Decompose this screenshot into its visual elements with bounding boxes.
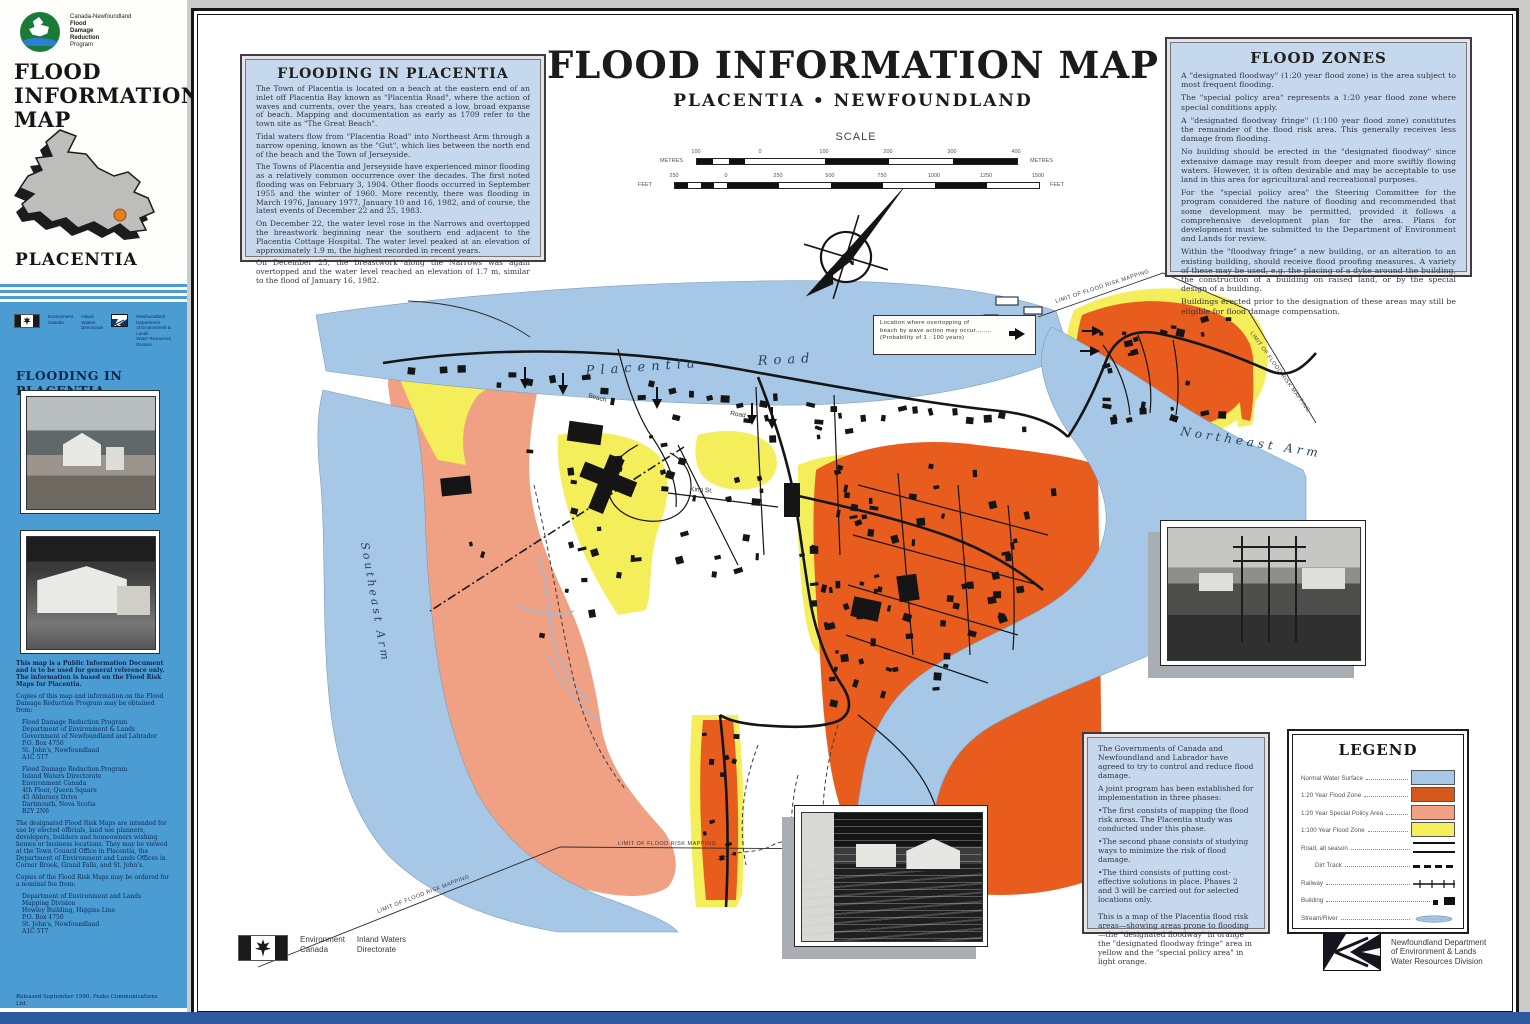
program-logo-icon xyxy=(20,12,60,52)
program-info-box: The Governments of Canada and Newfoundla… xyxy=(1082,732,1270,934)
program-line: Flood xyxy=(70,21,180,28)
dirt-track-symbol xyxy=(1413,865,1455,868)
program-paragraph: •The second phase consists of studying w… xyxy=(1098,837,1254,864)
canada-flag-icon xyxy=(238,935,288,961)
flooding-paragraph: On December 22, the water level rose in … xyxy=(256,220,530,255)
scale-feet: 250 0 250 500 750 1000 1250 1500 FEET FE… xyxy=(646,173,1066,197)
legend-item: Stream/River xyxy=(1301,907,1455,925)
sidebar-footnote: Released September 1990, Peaks Communica… xyxy=(16,994,166,1007)
scale-title: SCALE xyxy=(646,131,1066,143)
floodway-swatch xyxy=(1411,787,1455,802)
legend-item: Road, all season xyxy=(1301,837,1455,855)
flood-photo-street xyxy=(794,805,988,947)
north-letter: N xyxy=(842,251,856,269)
legend-title: LEGEND xyxy=(1301,741,1455,759)
flood-zones-title: FLOOD ZONES xyxy=(1181,49,1456,67)
program-paragraph: •The third consists of putting cost-effe… xyxy=(1098,868,1254,904)
newfoundland-locator-map xyxy=(10,118,170,250)
flooding-paragraph: On December 25, the breastwork along the… xyxy=(256,259,530,285)
fringe-swatch xyxy=(1411,822,1455,837)
annotation-line: beach by wave action may occur........ xyxy=(880,328,1029,336)
special-policy-swatch xyxy=(1411,805,1455,820)
newfoundland-flag-icon xyxy=(1323,933,1381,971)
stream-symbol xyxy=(1413,914,1455,924)
water-label-road: Road xyxy=(756,351,815,369)
legend-item: 1:20 Year Special Policy Area xyxy=(1301,802,1455,820)
zones-paragraph: Buildings erected prior to the designati… xyxy=(1181,297,1456,315)
program-line: Damage xyxy=(70,28,180,35)
sidebar-address: Flood Damage Reduction Program Departmen… xyxy=(22,719,172,761)
sidebar-paragraph: This map is a Public Information Documen… xyxy=(16,660,172,688)
flood-photo-field xyxy=(1160,520,1366,666)
street-label-road: Road xyxy=(730,410,747,419)
sidebar-top-panel: Canada-Newfoundland Flood Damage Reducti… xyxy=(0,0,187,283)
wave-icon xyxy=(20,38,60,46)
canada-flag-icon xyxy=(14,314,40,328)
legend-item: Railway xyxy=(1301,872,1455,890)
legend-item: Normal Water Surface xyxy=(1301,767,1455,785)
annotation-line: (Probability of 1 : 100 years) xyxy=(880,335,1029,343)
zones-paragraph: For the "special policy area" the Steeri… xyxy=(1181,188,1456,243)
overtopping-annotation: Location where overtopping of beach by w… xyxy=(873,315,1036,355)
flooding-paragraph: The Towns of Placentia and Jerseyside ha… xyxy=(256,163,530,216)
map-subtitle: PLACENTIA • NEWFOUNDLAND xyxy=(518,91,1188,111)
program-paragraph: The Governments of Canada and Newfoundla… xyxy=(1098,744,1254,780)
legend-item: 1:20 Year Flood Zone xyxy=(1301,785,1455,803)
scale-metres: 100 0 100 200 300 400 METRES METRES xyxy=(646,149,1066,173)
sidebar-logos: Environment Canada Inland Waters Directo… xyxy=(14,314,174,347)
flooding-box-title: FLOODING IN PLACENTIA xyxy=(256,66,530,82)
flooding-info-box: FLOODING IN PLACENTIA The Town of Placen… xyxy=(240,54,546,262)
street-label-king: King St. xyxy=(690,486,713,495)
sidebar-paragraph: Copies of the Flood Risk Maps may be ord… xyxy=(16,874,172,888)
legend-item: Building xyxy=(1301,890,1455,908)
nfld-dept-label: Newfoundland Departmentof Environment & … xyxy=(1391,938,1486,967)
sidebar-paragraph: Copies of this map and information on th… xyxy=(16,693,172,714)
water-swatch xyxy=(1411,770,1455,785)
sidebar-text-block: This map is a Public Information Documen… xyxy=(16,660,172,940)
scale-bar: SCALE 100 0 100 200 300 400 METRES METRE… xyxy=(646,131,1066,197)
zones-paragraph: A "designated floodway" (1:20 year flood… xyxy=(1181,71,1456,89)
legend-item: Dirt Track xyxy=(1301,855,1455,873)
floodway-zone xyxy=(1239,343,1253,421)
program-line: Program xyxy=(70,42,180,49)
railway-symbol xyxy=(1413,879,1455,889)
zones-paragraph: Within the "floodway fringe" a new build… xyxy=(1181,247,1456,293)
inland-waters-text: Inland Waters Directorate xyxy=(81,314,103,347)
placentia-dot xyxy=(114,209,126,221)
newfoundland-shape-icon xyxy=(28,17,50,39)
flood-photo-1 xyxy=(20,390,160,514)
floodway-zone xyxy=(700,720,738,900)
bottom-band xyxy=(0,1012,1530,1024)
road-symbol xyxy=(1413,842,1455,853)
program-paragraph: A joint program has been established for… xyxy=(1098,784,1254,802)
sidebar-paragraph: The designated Flood Risk Maps are inten… xyxy=(16,820,172,869)
sidebar-blue-panel: Environment Canada Inland Waters Directo… xyxy=(0,302,187,1008)
inland-waters-label: Inland WatersDirectorate xyxy=(357,935,406,954)
env-canada-label: EnvironmentCanada xyxy=(300,935,345,954)
zones-paragraph: A "designated floodway fringe" (1:100 ye… xyxy=(1181,116,1456,144)
footer-right: Newfoundland Departmentof Environment & … xyxy=(1323,933,1486,971)
program-paragraph: •The first consists of mapping the flood… xyxy=(1098,806,1254,833)
limit-label: LIMIT OF FLOOD RISK MAPPING xyxy=(618,841,716,847)
sidebar-region-label: PLACENTIA xyxy=(15,250,138,270)
flooding-paragraph: Tidal waters flow from "Placentia Road" … xyxy=(256,133,530,159)
flood-zones-box: FLOOD ZONES A "designated floodway" (1:2… xyxy=(1165,37,1472,277)
poster: Canada-Newfoundland Flood Damage Reducti… xyxy=(0,0,1530,1024)
program-line: Canada-Newfoundland xyxy=(70,14,180,21)
flooding-paragraph: The Town of Placentia is located on a be… xyxy=(256,85,530,129)
nfld-dept-text: Newfoundland Department of Environment &… xyxy=(136,314,174,347)
sidebar-address: Department of Environment and Lands Mapp… xyxy=(22,893,172,935)
newfoundland-flag-icon xyxy=(111,314,128,327)
zones-paragraph: No building should be erected in the "de… xyxy=(1181,147,1456,184)
map-panel: N Placentia Road Southeast Arm Northeast… xyxy=(191,8,1519,1018)
sidebar: Canada-Newfoundland Flood Damage Reducti… xyxy=(0,0,187,1012)
zones-paragraph: The "special policy area" represents a 1… xyxy=(1181,93,1456,111)
map-panel-inner: N Placentia Road Southeast Arm Northeast… xyxy=(197,14,1513,1012)
program-line: Reduction xyxy=(70,35,180,42)
annotation-line: Location where overtopping of xyxy=(880,320,1029,328)
map-main-title: FLOOD INFORMATION MAP xyxy=(518,43,1188,87)
annotation-arrow-icon xyxy=(1015,328,1031,340)
env-canada-text: Environment Canada xyxy=(48,314,73,347)
program-paragraph: This is a map of the Placentia flood ris… xyxy=(1098,912,1254,966)
legend: LEGEND Normal Water Surface 1:20 Year Fl… xyxy=(1287,729,1469,934)
program-name: Canada-Newfoundland Flood Damage Reducti… xyxy=(70,14,180,49)
stripe-divider xyxy=(0,281,187,302)
building-symbol xyxy=(1433,897,1455,905)
flood-photo-2 xyxy=(20,530,160,654)
footer-left: EnvironmentCanada Inland WatersDirectora… xyxy=(238,935,406,961)
legend-item: 1:100 Year Flood Zone xyxy=(1301,820,1455,838)
sidebar-address: Flood Damage Reduction Program Inland Wa… xyxy=(22,766,172,815)
